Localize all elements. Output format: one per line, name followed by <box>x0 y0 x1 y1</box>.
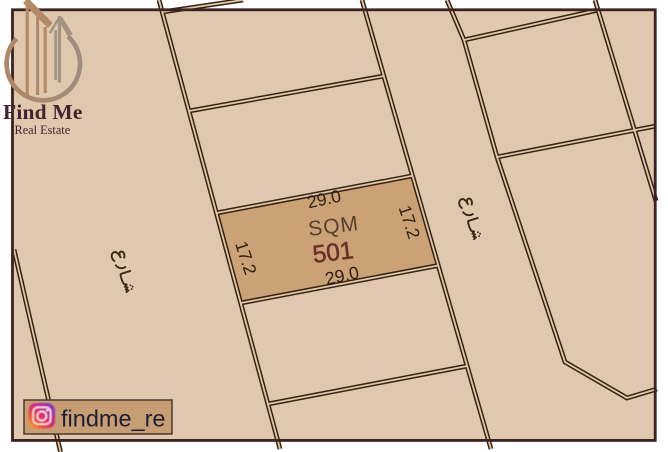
svg-text:findme_re: findme_re <box>61 406 166 432</box>
svg-text:Find Me: Find Me <box>3 100 83 124</box>
svg-text:Real Estate: Real Estate <box>15 123 71 137</box>
